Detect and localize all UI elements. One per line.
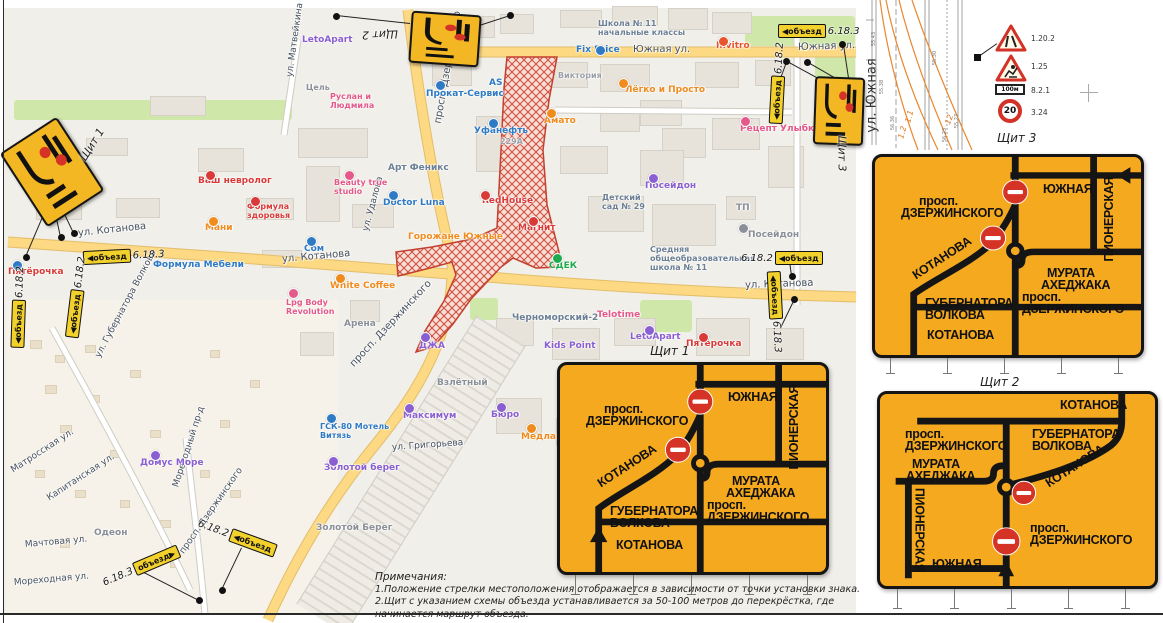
- street-yuzhnaya: ЮЖНАЯ: [932, 558, 981, 571]
- poi-label: Пятёрочка: [686, 340, 742, 350]
- poi-label: ТП: [736, 204, 750, 214]
- poi-icon: [488, 118, 499, 129]
- sign-install-dot: [58, 234, 65, 241]
- detour-sign-code: 6.18.3: [771, 321, 784, 353]
- poi-icon: [552, 253, 563, 264]
- detour-scheme-sheet: Южная ул.Южная ул.ул. Котановаул. Котано…: [0, 0, 1163, 623]
- poi-icon: [288, 288, 299, 299]
- elevation-mark: 56.36: [890, 116, 896, 130]
- poi-label: Бюро: [491, 411, 519, 421]
- street-pionerskaya: ПИОНЕРСКАЯ: [1103, 174, 1116, 264]
- poi-icon: [496, 402, 507, 413]
- poi-icon: [718, 36, 729, 47]
- poi-label: Черноморский-2: [512, 314, 598, 324]
- poi-icon: [326, 413, 337, 424]
- elevation-mark: 55.38: [879, 80, 885, 94]
- poi-label: Арт Феникс: [388, 164, 449, 174]
- detour-sign-code: 6.18.3: [828, 26, 860, 37]
- street-dzerzhinskogo2: ДЗЕРЖИНСКОГО: [1030, 534, 1132, 547]
- sign-install-dot: [804, 59, 811, 66]
- poi-icon: [740, 116, 751, 127]
- sheet-left-line: [3, 0, 4, 623]
- poi-label: LetoApart: [302, 36, 353, 46]
- street-kotanova-bottom: КОТАНОВА: [927, 329, 994, 342]
- poi-icon: [738, 223, 749, 234]
- street-yuzhnaya: ЮЖНАЯ: [1043, 183, 1092, 196]
- detour-sign: ◀объезд 6.18.2: [10, 266, 27, 348]
- poi-label: Telotime: [597, 311, 640, 321]
- sheet-bottom-line: [0, 613, 1163, 615]
- poi-label: СДЕК: [549, 262, 577, 272]
- street-dzerzhinskogo: ДЗЕРЖИНСКОГО: [586, 415, 688, 428]
- poi-label: LetoApart: [630, 333, 681, 343]
- poi-label: Beauty true studio: [334, 179, 387, 197]
- distance-plate-sign: 100м: [995, 84, 1025, 95]
- poi-icon: [526, 423, 537, 434]
- detour-sign-code: 6.18.2: [72, 256, 87, 289]
- street-label: Южная ул.: [633, 44, 690, 55]
- detour-sign-code: 6.18.2: [741, 253, 773, 264]
- sign-code: 1.20.2: [1031, 34, 1055, 43]
- detour-arrow-plate: ◀объезд: [778, 24, 826, 38]
- shield1-board: просп. ДЗЕРЖИНСКОГО ЮЖНАЯ ПИОНЕРСКАЯ КОТ…: [557, 362, 829, 575]
- poi-label: Домус Море: [140, 459, 204, 469]
- poi-icon: [205, 170, 216, 181]
- no-entry-sign: [1012, 481, 1035, 504]
- sign-install-dot: [507, 12, 514, 19]
- shield-marker: [408, 11, 481, 68]
- poi-icon: [698, 332, 709, 343]
- street-murata2: АХЕДЖАКА: [906, 470, 975, 483]
- poi-label: Посейдон: [748, 231, 799, 241]
- street-pionerskaya: ПИОНЕРСКАЯ: [913, 485, 926, 575]
- detour-sign-code: 6.18.2: [14, 266, 26, 298]
- poi-icon: [644, 325, 655, 336]
- poi-label: AS: [489, 79, 502, 89]
- poi-icon: [150, 450, 161, 461]
- no-entry-sign: [1003, 180, 1028, 204]
- poi-label: ГСК-80 Мотель Витязь: [320, 423, 389, 441]
- crosshair-mark: [1080, 84, 1098, 102]
- shield-marker-label: Щит 3: [836, 135, 849, 171]
- shield2-caption: Щит 2: [980, 375, 1019, 389]
- poi-icon: [250, 196, 261, 207]
- sign-code: 1.25: [1031, 62, 1048, 71]
- street-kotanova-top: КОТАНОВА: [1060, 399, 1127, 412]
- board-post: [1068, 589, 1069, 609]
- poi-label: 229А: [500, 138, 523, 147]
- poi-label: Школа № 11 начальные классы: [598, 20, 685, 38]
- poi-label: Одеон: [94, 529, 127, 539]
- cad-street-label: ул. Южная: [865, 56, 880, 136]
- detour-arrow-plate: ◀объезд: [767, 271, 783, 319]
- note-item: 2.Щит с указанием схемы объезда устанавл…: [375, 596, 867, 621]
- poi-label: Золотой Берег: [316, 524, 392, 534]
- roundabout: [693, 456, 707, 469]
- sign-code: 8.2.1: [1031, 86, 1050, 95]
- shield-marker-label: Щит 2: [362, 27, 399, 41]
- sign-install-dot: [791, 296, 798, 303]
- board-post: [1011, 589, 1012, 609]
- poi-label: Детский сад № 29: [602, 194, 645, 212]
- cad-install-dot: [974, 54, 981, 61]
- poi-label: Взлётный: [437, 379, 488, 389]
- road-narrows-sign: [995, 24, 1027, 56]
- poi-label: Лёгко и Просто: [625, 86, 705, 96]
- roundabout: [1008, 244, 1022, 257]
- detour-sign-code: 6.18.3: [132, 248, 164, 261]
- sign-install-dot: [333, 13, 340, 20]
- board-post: [890, 358, 891, 374]
- no-entry-sign: [688, 389, 713, 414]
- board-post: [1061, 358, 1062, 374]
- street-volkova: ВОЛКОВА: [610, 517, 670, 530]
- poi-icon: [648, 173, 659, 184]
- poi-icon: [528, 216, 539, 227]
- shield3-board: просп. ДЗЕРЖИНСКОГО ЮЖНАЯ ПИОНЕРСКАЯ КОТ…: [872, 154, 1144, 358]
- sign-install-dot: [23, 254, 30, 261]
- poi-label: Уфанефть: [474, 127, 528, 137]
- poi-icon: [595, 45, 606, 56]
- poi-icon: [480, 190, 491, 201]
- poi-icon: [618, 78, 629, 89]
- street-volkova: ВОЛКОВА: [925, 309, 985, 322]
- poi-icon: [344, 170, 355, 181]
- mini-scheme-icon: [410, 13, 479, 65]
- notes-title: Примечания:: [375, 571, 867, 583]
- poi-label: Kids Point: [544, 342, 596, 352]
- note-item: 1.Положение стрелки местоположения отобр…: [375, 584, 867, 596]
- elevation-mark: 55.30: [932, 51, 938, 65]
- poi-icon: [435, 80, 446, 91]
- elevation-mark: 55.43: [871, 32, 877, 46]
- poi-label: Виктория: [558, 72, 602, 81]
- board-post: [1118, 358, 1119, 374]
- you-are-here-arrow: [590, 527, 607, 542]
- street-dzerzhinskogo2: ДЗЕРЖИНСКОГО: [1022, 303, 1124, 316]
- sign-install-dot: [196, 597, 203, 604]
- sign-install-dot: [219, 587, 226, 594]
- poi-icon: [306, 236, 317, 247]
- shield1-caption: Щит 1: [650, 344, 689, 358]
- detour-arrow-plate: ◀объезд: [10, 300, 26, 348]
- board-post: [1125, 589, 1126, 609]
- poi-icon: [335, 273, 346, 284]
- detour-sign-code: 6.18.2: [773, 42, 786, 74]
- poi-label: Цель: [306, 84, 330, 93]
- street-dzerzhinskogo2: ДЗЕРЖИНСКОГО: [707, 511, 809, 524]
- poi-label: Формула Мебели: [153, 261, 244, 271]
- poi-label: Руслан и Людмила: [330, 93, 374, 111]
- poi-label: ДЖА: [419, 342, 445, 352]
- poi-label: Арена: [344, 320, 376, 330]
- poi-icon: [328, 456, 339, 467]
- detour-sign: ◀объезд 6.18.2: [741, 251, 823, 265]
- poi-label: Горожане Южные: [408, 233, 503, 243]
- detour-arrow-plate: ◀объезд: [83, 249, 131, 265]
- poi-icon: [420, 332, 431, 343]
- poi-label: Lpg Body Revolution: [286, 299, 335, 317]
- board-post: [954, 589, 955, 609]
- poi-icon: [208, 216, 219, 227]
- detour-arrow-plate: ◀объезд: [769, 76, 785, 124]
- poi-icon: [546, 108, 557, 119]
- board-post: [897, 589, 898, 609]
- you-are-here-arrow: [1117, 167, 1131, 184]
- street-pionerskaya: ПИОНЕРСКАЯ: [788, 382, 801, 472]
- poi-icon: [404, 403, 415, 414]
- street-yuzhnaya: ЮЖНАЯ: [728, 391, 777, 404]
- board-post: [947, 358, 948, 374]
- speed-limit-sign: 20: [998, 99, 1022, 123]
- poi-icon: [388, 190, 399, 201]
- sign-install-dot: [71, 230, 78, 237]
- poi-label: Средняя общеобразовательная школа № 11: [650, 246, 755, 272]
- no-entry-sign: [993, 528, 1020, 555]
- detour-sign: ◀объезд 6.18.3: [778, 24, 860, 38]
- sign-install-dot: [789, 273, 796, 280]
- street-kotanova-bottom: КОТАНОВА: [616, 539, 683, 552]
- elevation-mark: 56.23: [942, 128, 948, 142]
- roundabout: [999, 480, 1013, 494]
- poi-label: Рецепт Улыбки: [740, 125, 820, 135]
- sign-install-dot: [839, 41, 846, 48]
- no-entry-sign: [980, 226, 1005, 250]
- no-entry-sign: [665, 437, 690, 462]
- street-label: Южная ул.: [798, 40, 856, 53]
- poi-label: Сом: [304, 245, 324, 255]
- mini-scheme-icon: [815, 78, 863, 144]
- detour-arrow-plate: ◀объезд: [775, 251, 823, 265]
- road-works-sign: [995, 54, 1027, 86]
- sign-code: 3.24: [1031, 108, 1048, 117]
- board-post: [1004, 358, 1005, 374]
- street-dzerzhinskogo: ДЗЕРЖИНСКОГО: [901, 207, 1003, 220]
- shield3-caption: Щит 3: [997, 131, 1036, 145]
- poi-label: Прокат-Сервис: [426, 90, 504, 100]
- street-dzerzhinskogo: ДЗЕРЖИНСКОГО: [905, 440, 1007, 453]
- shield2-board: КОТАНОВА просп. ДЗЕРЖИНСКОГО ГУБЕРНАТОРА…: [877, 391, 1158, 589]
- street-volkova: ВОЛКОВА: [1032, 440, 1092, 453]
